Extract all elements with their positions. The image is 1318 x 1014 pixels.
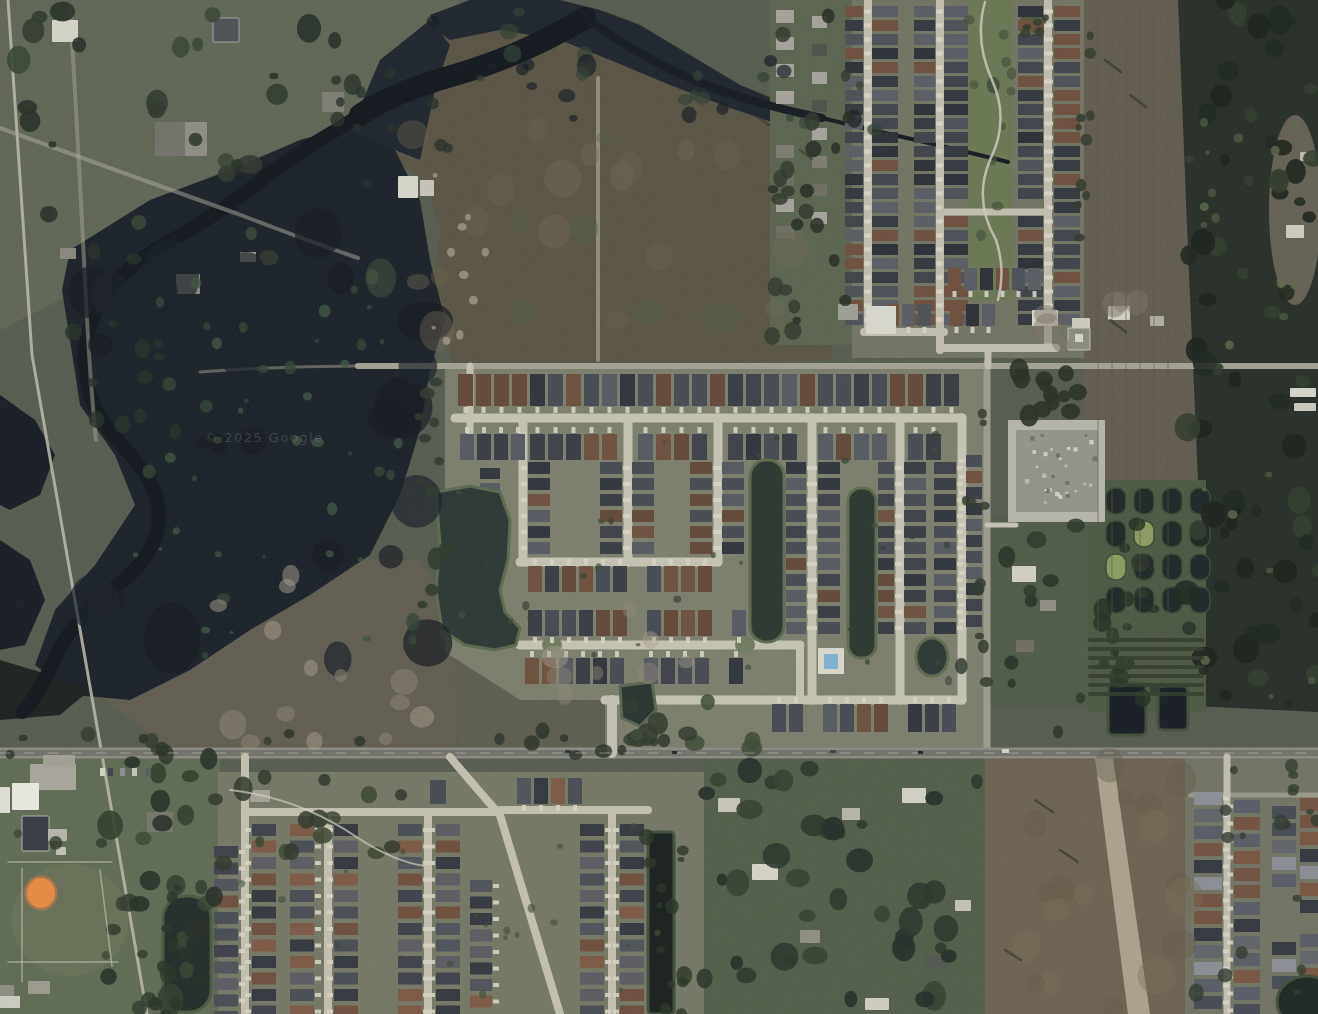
satellite-map-viewport[interactable]: © 2025 Google	[0, 0, 1318, 1014]
imagery-noise	[0, 0, 1318, 1014]
satellite-imagery	[0, 0, 1318, 1014]
